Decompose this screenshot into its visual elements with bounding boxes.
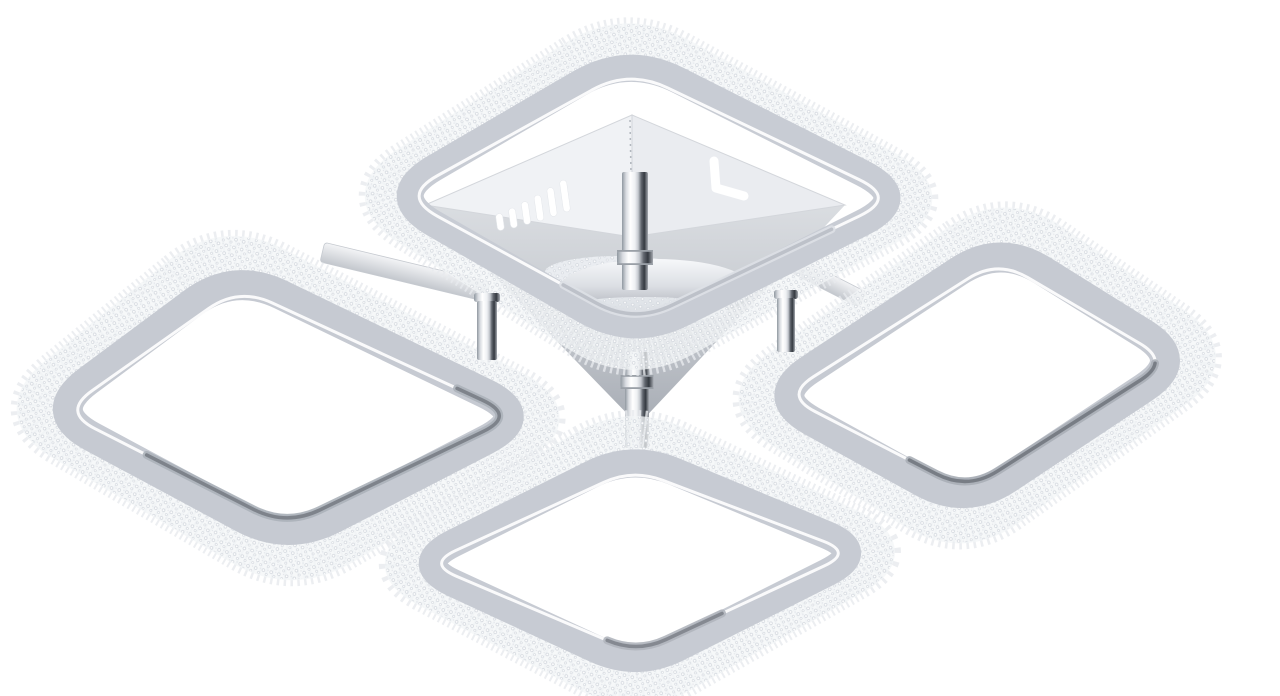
lamp-illustration	[0, 0, 1280, 696]
center-rod-upper-shaft	[622, 172, 648, 290]
product-photo: Chrome modern LED ceiling lamp with four…	[0, 0, 1280, 696]
center-rod-lower-collar-edge	[621, 387, 654, 389]
center-rod-lower-collar	[621, 375, 654, 389]
center-rod-upper	[617, 172, 653, 290]
center-rod-upper-collar	[617, 250, 653, 265]
standoff-post-right	[774, 290, 798, 352]
photo-stage: Chrome modern LED ceiling lamp with four…	[0, 0, 1280, 696]
standoff-cap	[774, 290, 798, 299]
standoff-shaft	[777, 298, 795, 352]
standoff-cap	[474, 293, 500, 302]
center-rod-upper-collar-edge	[617, 250, 653, 252]
standoff-shaft	[477, 301, 497, 360]
standoff-post-left	[474, 293, 500, 360]
center-rod-upper-collar-edge	[617, 263, 653, 265]
